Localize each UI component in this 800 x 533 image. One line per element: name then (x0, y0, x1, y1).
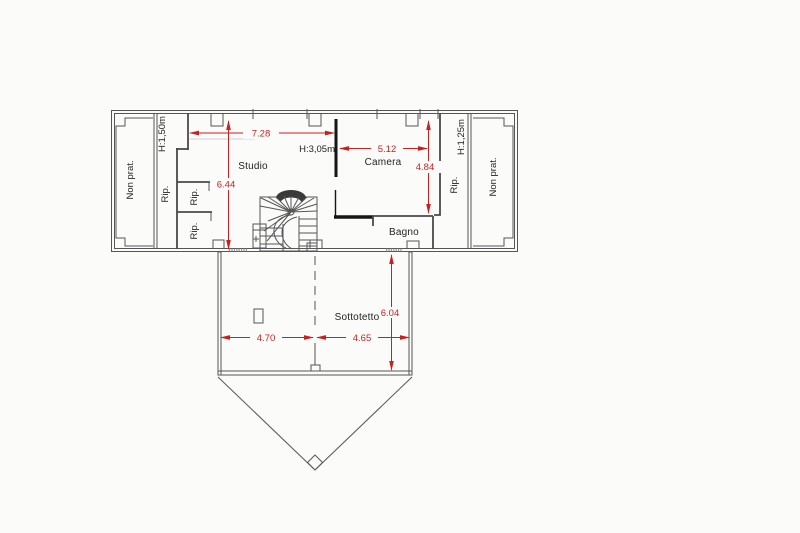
dim-label-4-65: 4.65 (353, 333, 372, 344)
sottotetto-bottom-window (311, 365, 320, 371)
apex-square (308, 455, 323, 470)
label-non-prat-right: Non prat. (488, 157, 499, 196)
floor-plan-page: 7.28 6.44 5.12 4.84 (0, 0, 800, 533)
label-h150: H:1,50m (157, 116, 168, 152)
sottotetto-left-wall (218, 252, 221, 375)
dim-sottotetto-right: 4.65 (316, 332, 410, 344)
dim-label-7-28: 7.28 (252, 129, 271, 140)
stair-base-step (307, 243, 317, 251)
top-wall-windows (211, 114, 418, 126)
dim-camera-width: 5.12 (339, 143, 428, 155)
label-h305: H:3,05m (299, 144, 335, 155)
label-camera: Camera (365, 157, 402, 168)
wall-nonprat-right-divider (468, 114, 471, 249)
staircase (253, 190, 317, 251)
stair-walkline-inner (282, 217, 297, 249)
label-studio: Studio (238, 161, 268, 172)
label-bagno: Bagno (389, 227, 419, 238)
label-rip-strip-right: Rip. (449, 177, 460, 194)
dim-label-4-70: 4.70 (257, 333, 276, 344)
label-rip-lower: Rip. (189, 223, 200, 240)
dim-label-5-12: 5.12 (378, 144, 397, 155)
label-sottotetto: Sottotetto (335, 312, 380, 323)
sottotetto-right-wall (409, 252, 412, 375)
dim-studio-depth: 6.44 (210, 120, 243, 250)
sottotetto-bottom-wall (218, 371, 412, 375)
bottom-wall-windows (213, 240, 419, 248)
dim-label-6-44: 6.44 (217, 180, 236, 191)
floor-plan-canvas: 7.28 6.44 5.12 4.84 (0, 0, 800, 533)
dim-sottotetto-left: 4.70 (220, 332, 314, 344)
dim-label-6-04: 6.04 (381, 308, 400, 319)
terrace-triangle (218, 377, 412, 470)
dim-label-4-84: 4.84 (416, 162, 435, 173)
label-non-prat-left: Non prat. (125, 160, 136, 199)
label-rip-strip-left: Rip. (160, 186, 171, 203)
dim-camera-depth: 4.84 (409, 120, 441, 214)
dim-studio-width: 7.28 (189, 127, 335, 140)
label-h125: H:1,25m (456, 119, 467, 155)
label-rip-upper: Rip. (189, 189, 200, 206)
chimney (254, 309, 263, 323)
